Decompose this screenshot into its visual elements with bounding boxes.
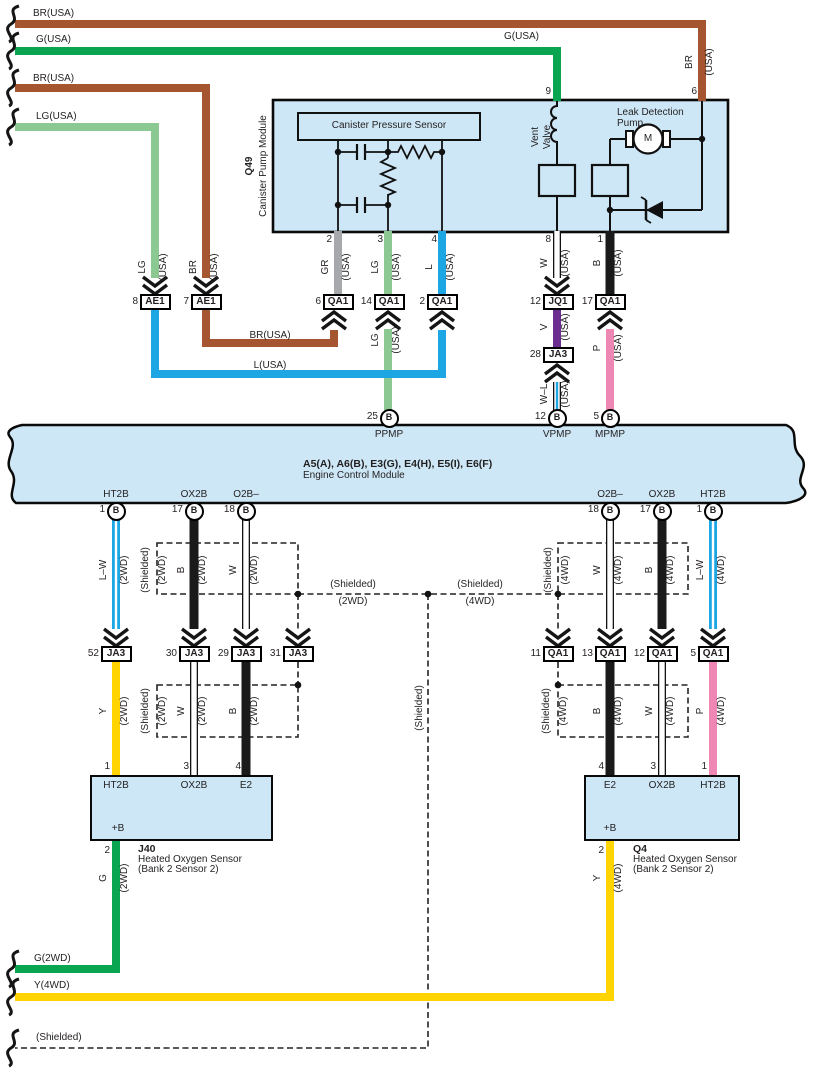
label-b: +B [112,823,125,835]
ecm-body-pin: B [548,409,567,428]
label-1: 1 [99,504,105,516]
connector-pin-number: 12 [621,648,645,660]
connector-ja3-52: JA3 [101,646,132,662]
connector-pin-number: 7 [165,296,189,308]
label-bank-2-sensor-2: (Bank 2 Sensor 2) [138,864,219,876]
ecm-body-pin: B [653,502,672,521]
connector-pin-number: 29 [205,648,229,660]
label-1: 1 [701,761,707,773]
label-mpmp: MPMP [595,429,625,441]
connector-qa1-17: QA1 [595,294,626,310]
connector-qa1-14: QA1 [374,294,405,310]
label-canister-pressure-sensor: Canister Pressure Sensor [332,120,447,132]
label-4: 4 [235,761,241,773]
wire-label-2wd: (2WD) [248,669,262,753]
wire-label-4wd: (4WD) [612,669,626,753]
connector-pin-number: 5 [672,648,696,660]
connector-pin-number: 31 [257,648,281,660]
label-m: M [644,133,652,145]
wire-label-y: Y [97,669,111,753]
connector-pin-number: 6 [297,296,321,308]
label-ppmp: PPMP [375,429,403,441]
connector-pin-number: 52 [75,648,99,660]
wire-label-lg: LG [369,298,383,382]
wire-label-4wd: (4WD) [559,528,573,612]
connector-pin-number: 14 [348,296,372,308]
label-3: 3 [650,761,656,773]
wire-label-w: W [643,669,657,753]
wire-label-l-w: L–W [694,528,708,612]
wire-label-usa: (USA) [390,298,404,382]
label-e2: E2 [240,780,252,792]
label-pump: Pump [617,118,643,130]
label-17: 17 [640,504,651,516]
wire-label-w: W [591,528,605,612]
wire-label-b: B [227,669,241,753]
wire-label-2wd: (2WD) [196,669,210,753]
connector-qa1-2: QA1 [427,294,458,310]
wire-label-2wd: (2WD) [196,528,210,612]
wire-label-4wd: (4WD) [715,669,729,753]
connector-pin-number: 13 [569,648,593,660]
wiring-diagram: BR(USA)G(USA)BR(USA)LG(USA)G(USA)96Canis… [0,0,816,1071]
connector-pin-number: 28 [517,349,541,361]
label-o2b: O2B– [233,489,259,501]
label-br-usa: BR(USA) [249,330,290,342]
label-b: +B [604,823,617,835]
wire-label-shielded: (Shielded) [139,528,153,612]
label-y-4wd: Y(4WD) [34,980,70,992]
ecm-body-pin: B [237,502,256,521]
wire-label-4wd: (4WD) [664,528,678,612]
wire-label-b: B [591,669,605,753]
label-ox2b: OX2B [649,489,676,501]
label-ht2b: HT2B [700,780,726,792]
wire-label-p: P [694,669,708,753]
wire-label-y: Y [591,836,605,920]
connector-pin-number: 11 [517,648,541,660]
wire-label-usa: (USA) [703,20,717,104]
label-25: 25 [367,411,378,423]
ecm-body-pin: B [704,502,723,521]
wire-label-usa: (USA) [612,306,626,390]
wire-label-g: G [97,836,111,920]
ecm-body-pin: B [601,409,620,428]
wire-label-4wd: (4WD) [612,528,626,612]
wire-label-2wd: (2WD) [156,669,170,753]
label-1: 1 [104,761,110,773]
label-18: 18 [588,504,599,516]
wire-label-4wd: (4WD) [612,836,626,920]
label-bank-2-sensor-2: (Bank 2 Sensor 2) [633,864,714,876]
label-lg-usa: LG(USA) [36,111,77,123]
connector-pin-number: 8 [114,296,138,308]
wire-label-4wd: (4WD) [715,528,729,612]
connector-pin-number: 12 [517,296,541,308]
label-g-usa: G(USA) [504,31,539,43]
wire-label-2wd: (2WD) [118,528,132,612]
label-ox2b: OX2B [649,780,676,792]
label-ht2b: HT2B [103,780,129,792]
ecm-body-pin: B [107,502,126,521]
wire-label-l-w: L–W [97,528,111,612]
label-a5-a-a6-b-e3-g-e4-h-e5-i-e6-f: A5(A), A6(B), E3(G), E4(H), E5(I), E6(F) [303,458,492,470]
wire-label-shielded: (Shielded) [540,669,554,753]
label-ht2b: HT2B [103,489,129,501]
connector-pin-number: 30 [153,648,177,660]
wire-label-b: B [591,221,605,305]
ecm-body-pin: B [380,409,399,428]
ecm-body-pin: B [601,502,620,521]
label-g-usa: G(USA) [36,34,71,46]
wire-label-p: P [591,306,605,390]
label-br-usa: BR(USA) [33,8,74,20]
label-br-usa: BR(USA) [33,73,74,85]
label-18: 18 [224,504,235,516]
connector-qa1-5: QA1 [698,646,729,662]
wire-label-4wd: (4WD) [664,669,678,753]
ecm-body-pin: B [185,502,204,521]
wire-label-b: B [175,528,189,612]
label-shielded: (Shielded) [330,579,376,591]
wire-label-w: W [175,669,189,753]
label-5: 5 [593,411,599,423]
connector-ja3-31: JA3 [283,646,314,662]
label-2wd: (2WD) [339,596,368,608]
labels-overlay: BR(USA)G(USA)BR(USA)LG(USA)G(USA)96Canis… [0,0,816,1071]
label-o2b: O2B– [597,489,623,501]
wire-label-2wd: (2WD) [156,528,170,612]
wire-label-shielded: (Shielded) [413,666,427,750]
label-e2: E2 [604,780,616,792]
label-shielded: (Shielded) [36,1032,82,1044]
connector-ae1-7: AE1 [191,294,222,310]
wire-label-usa: (USA) [612,221,626,305]
wire-label-shielded: (Shielded) [542,528,556,612]
label-l-usa: L(USA) [254,360,287,372]
label-ox2b: OX2B [181,489,208,501]
connector-ja3-28: JA3 [543,347,574,363]
label-17: 17 [172,504,183,516]
label-1: 1 [696,504,702,516]
label-ox2b: OX2B [181,780,208,792]
wire-label-shielded: (Shielded) [139,669,153,753]
label-3: 3 [183,761,189,773]
connector-pin-number: 2 [401,296,425,308]
wire-label-valve: Valve [541,95,555,179]
wire-label-br: BR [683,20,697,104]
label-g-2wd: G(2WD) [34,953,71,965]
label-engine-control-module: Engine Control Module [303,470,405,482]
wire-label-w: W [227,528,241,612]
label-4: 4 [598,761,604,773]
wire-label-q49: Q49 [243,124,257,208]
wire-label-2wd: (2WD) [118,836,132,920]
label-4wd: (4WD) [466,596,495,608]
wire-label-2wd: (2WD) [118,669,132,753]
label-shielded: (Shielded) [457,579,503,591]
wire-label-4wd: (4WD) [557,669,571,753]
wire-label-canister-pump-module: Canister Pump Module [257,96,271,236]
wire-label-b: B [643,528,657,612]
wire-label-2wd: (2WD) [248,528,262,612]
connector-pin-number: 17 [569,296,593,308]
label-ht2b: HT2B [700,489,726,501]
